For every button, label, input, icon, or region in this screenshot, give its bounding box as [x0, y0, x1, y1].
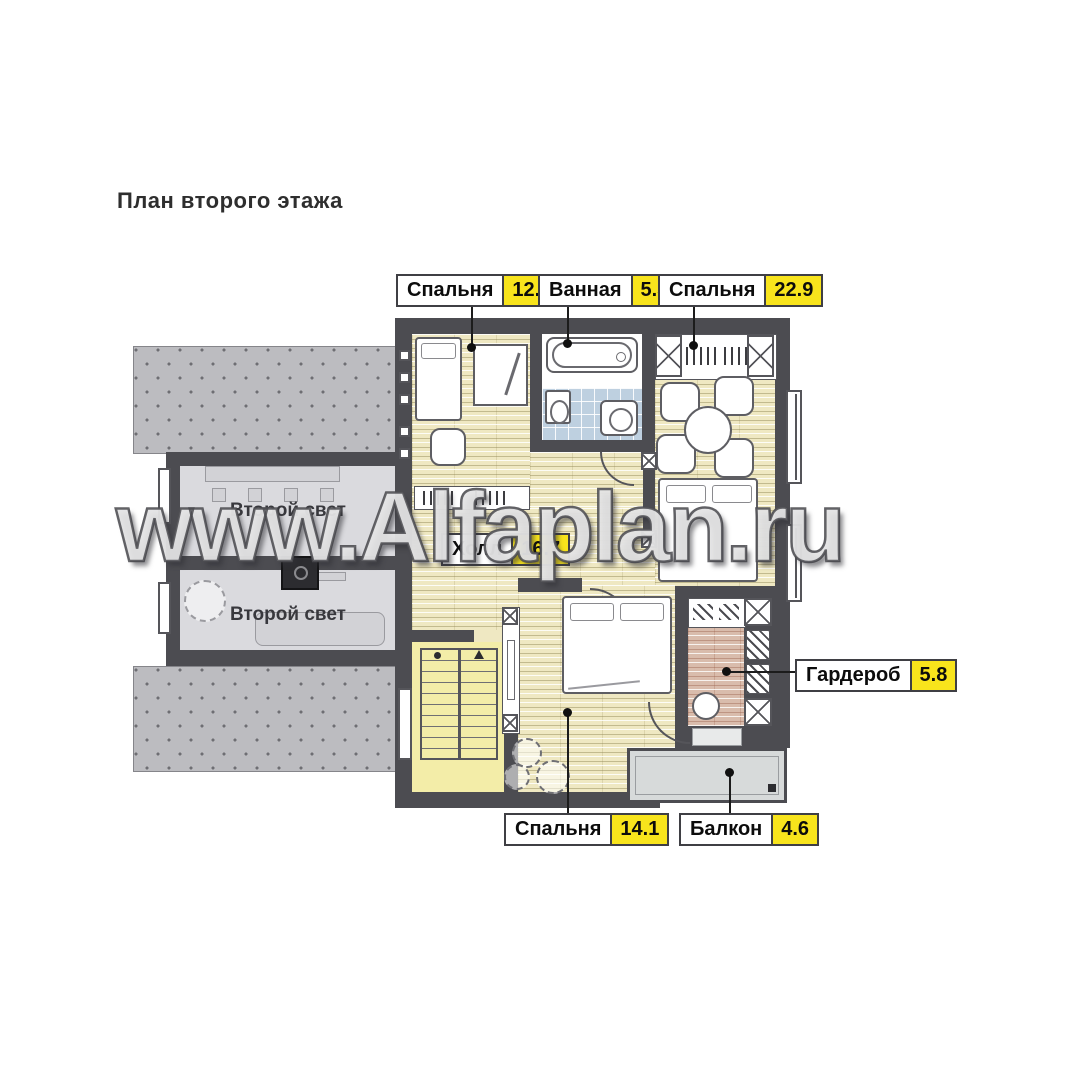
room-label: Спальня — [506, 815, 610, 844]
balcony-floor — [627, 748, 787, 803]
wall-niche — [399, 350, 410, 361]
wardrobe-column — [655, 335, 682, 377]
leader-dot — [722, 667, 731, 676]
roof-area-bottom-left — [133, 666, 397, 772]
room-area-badge: 22.9 — [764, 276, 821, 305]
room-label: Балкон — [681, 815, 771, 844]
wardrobe-column — [747, 335, 774, 377]
plant-icon — [536, 760, 570, 794]
watermark-text: www.Alfaplan.ru — [116, 470, 843, 584]
page-title: План второго этажа — [117, 188, 343, 214]
wall-niche — [399, 394, 410, 405]
wardrobe-unit — [688, 598, 746, 628]
wardrobe-column — [744, 698, 772, 726]
shelf-unit — [746, 664, 770, 694]
round-table-icon — [684, 406, 732, 454]
leader-line — [729, 772, 731, 813]
leader-line — [693, 301, 695, 345]
floor-plan-page: План второго этажа Второй свет Второй св… — [0, 0, 1080, 1080]
leader-line — [567, 712, 569, 813]
wall-column — [641, 452, 657, 470]
interior-wall — [530, 440, 604, 452]
wall-niche — [399, 426, 410, 437]
wall-niche — [399, 372, 410, 383]
plant-icon — [504, 764, 530, 790]
leader-dot — [563, 708, 572, 717]
leader-line — [567, 301, 569, 343]
wall-niche — [399, 448, 410, 459]
leader-dot — [467, 343, 476, 352]
leader-dot — [563, 339, 572, 348]
bed-icon — [415, 337, 462, 421]
room-label: Спальня — [660, 276, 764, 305]
interior-wall — [642, 334, 655, 452]
room-area-badge: 5.8 — [910, 661, 956, 690]
closet-column — [502, 607, 518, 625]
interior-wall — [630, 440, 655, 452]
shelf-unit — [746, 630, 770, 660]
leader-line — [471, 301, 473, 347]
sink-vanity-icon — [600, 400, 638, 436]
callout-bedroom-14: Спальня 14.1 — [504, 813, 669, 846]
callout-balcony: Балкон 4.6 — [679, 813, 819, 846]
desk-icon — [473, 344, 528, 406]
leader-dot — [725, 768, 734, 777]
window — [158, 582, 171, 634]
basket-icon — [692, 692, 720, 720]
leader-dot — [689, 341, 698, 350]
roof-area-top-left — [133, 346, 397, 454]
wardrobe-column — [744, 598, 772, 626]
callout-bedroom-22: Спальня 22.9 — [658, 274, 823, 307]
interior-wall — [530, 334, 542, 452]
room-label: Гардероб — [797, 661, 910, 690]
room-label: Спальня — [398, 276, 502, 305]
room-area-badge: 4.6 — [771, 815, 817, 844]
room-label: Ванная — [540, 276, 631, 305]
room-area-badge: 14.1 — [610, 815, 667, 844]
bathtub-icon — [546, 337, 638, 373]
toilet-icon — [545, 390, 571, 424]
armchair-icon — [430, 428, 466, 466]
balcony-door-sill — [692, 728, 742, 746]
bed-icon — [562, 596, 672, 694]
closet-column — [502, 714, 518, 732]
callout-wardrobe: Гардероб 5.8 — [795, 659, 957, 692]
window — [398, 688, 412, 760]
stairs — [420, 648, 498, 760]
leader-line — [726, 671, 795, 673]
callout-bedroom-12: Спальня 12.3 — [396, 274, 561, 307]
second-light-label-lower: Второй свет — [188, 604, 388, 626]
